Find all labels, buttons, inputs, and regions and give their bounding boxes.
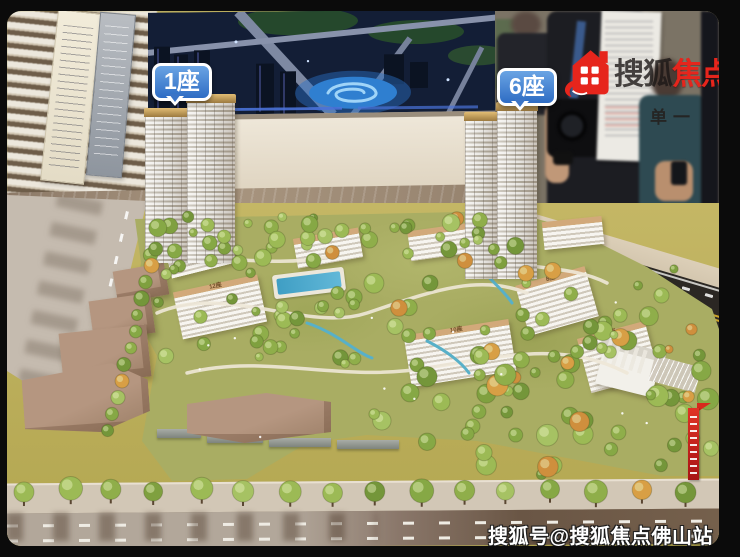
tower-6-east xyxy=(497,111,537,279)
tower-6-group xyxy=(465,109,541,279)
roof-label: 9座 xyxy=(606,329,617,337)
swimming-pool xyxy=(276,271,341,295)
red-banner-sign xyxy=(688,408,699,480)
roof-label: 8座 xyxy=(545,275,556,283)
roof-label: 10座 xyxy=(450,326,463,334)
tower-6-label-bubble: 6座 xyxy=(497,68,557,106)
sohu-focus-logo-icon xyxy=(560,39,614,103)
watermark-sub-text: 单一 xyxy=(650,103,696,128)
showroom-photo: 12座 8座 10座 9座 xyxy=(7,11,719,546)
tower-1-label: 1座 xyxy=(164,68,200,94)
roof-label: 12座 xyxy=(209,282,223,291)
tower-6-west xyxy=(465,121,499,279)
tower-1-group xyxy=(145,101,241,263)
watermark-brand-black: 搜狐 xyxy=(614,49,672,93)
tree-shadows xyxy=(7,513,377,541)
tower-1-east xyxy=(187,103,235,263)
red-flag xyxy=(697,403,711,412)
wrist-watch xyxy=(553,151,573,165)
sohu-account-watermark: 搜狐号@搜狐焦点佛山站 xyxy=(488,520,713,546)
photo-frame: 12座 8座 10座 9座 xyxy=(0,0,740,557)
sohu-focus-watermark: 搜狐焦点 xyxy=(560,39,719,103)
tower-6-label: 6座 xyxy=(509,73,545,99)
retaining-wall xyxy=(337,440,399,449)
watermark-brand-red: 焦点 xyxy=(672,49,719,93)
camera-lens xyxy=(557,111,587,141)
phone xyxy=(671,161,687,185)
tower-1-label-bubble: 1座 xyxy=(152,63,212,101)
tower-1-west xyxy=(145,117,189,263)
retaining-wall xyxy=(269,438,331,447)
